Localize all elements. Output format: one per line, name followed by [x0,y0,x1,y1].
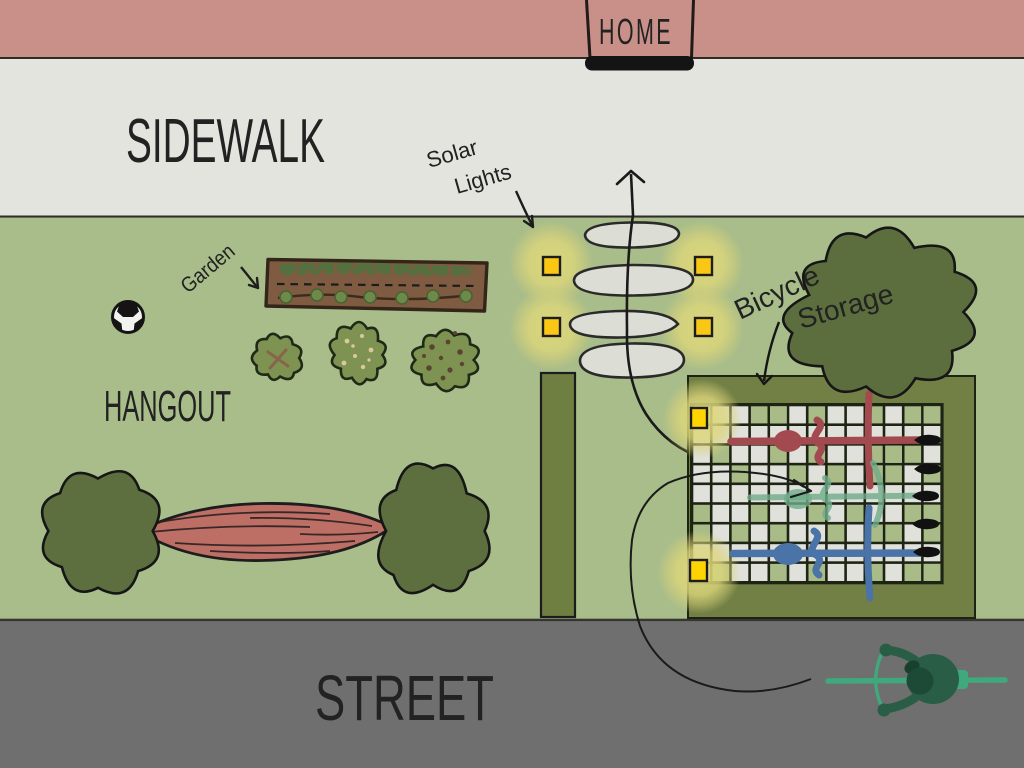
svg-text:HANGOUT: HANGOUT [104,382,231,431]
svg-text:HOME: HOME [599,11,673,52]
svg-text:STREET: STREET [315,662,494,734]
svg-text:SIDEWALK: SIDEWALK [126,107,325,176]
